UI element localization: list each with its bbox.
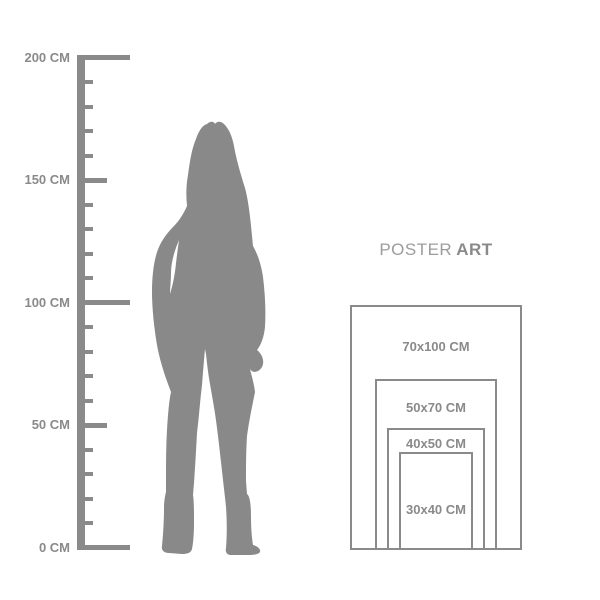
poster-size-label-70x100: 70x100 CM [350, 339, 522, 355]
poster-size-label-50x70: 50x70 CM [350, 400, 522, 416]
poster-art-title: POSTERART [350, 241, 522, 259]
poster-size-guide: POSTERART 70x100 CM50x70 CM40x50 CM30x40… [0, 0, 600, 600]
poster-size-label-40x50: 40x50 CM [350, 436, 522, 452]
poster-title-light: POSTER [379, 240, 452, 259]
poster-size-guide-diagram: 200 CM150 CM100 CM50 CM0 CM POSTERART 70… [0, 0, 600, 600]
poster-title-bold: ART [456, 240, 492, 259]
poster-size-label-30x40: 30x40 CM [350, 502, 522, 518]
poster-size-rect-30x40 [399, 452, 473, 550]
